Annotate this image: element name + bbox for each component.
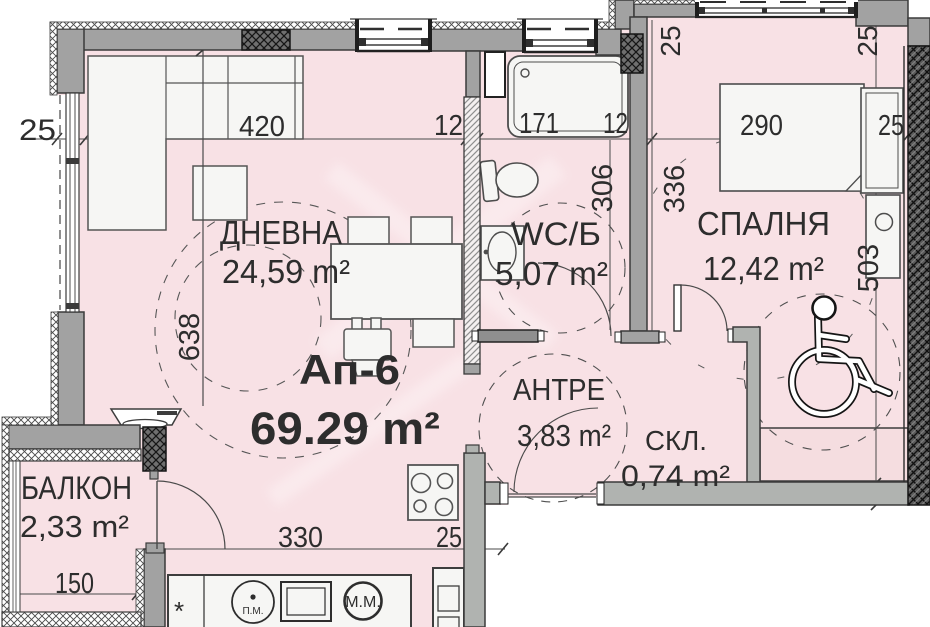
- svg-text:330: 330: [278, 522, 323, 554]
- svg-text:150: 150: [55, 568, 94, 600]
- svg-text:420: 420: [239, 111, 285, 143]
- svg-text:503: 503: [853, 244, 885, 292]
- svg-text:12: 12: [603, 108, 628, 140]
- svg-text:ДНЕВНА: ДНЕВНА: [220, 214, 342, 251]
- svg-text:69.29 m²: 69.29 m²: [250, 403, 440, 454]
- svg-text:25: 25: [852, 25, 883, 56]
- svg-text:СКЛ.: СКЛ.: [645, 425, 707, 456]
- svg-text:25: 25: [436, 522, 462, 554]
- svg-text:12,42 m²: 12,42 m²: [703, 250, 824, 287]
- svg-text:25: 25: [19, 114, 56, 147]
- svg-text:3,83 m²: 3,83 m²: [517, 418, 611, 453]
- svg-text:П.М.: П.М.: [242, 606, 263, 617]
- svg-text:0,74 m²: 0,74 m²: [621, 460, 730, 493]
- svg-text:2,33 m²: 2,33 m²: [20, 509, 129, 544]
- svg-text:М.М.: М.М.: [345, 594, 381, 611]
- svg-text:24,59 m²: 24,59 m²: [222, 253, 350, 290]
- svg-text:336: 336: [659, 165, 691, 213]
- svg-text:306: 306: [587, 164, 619, 212]
- svg-text:WC/Б: WC/Б: [511, 216, 601, 252]
- svg-text:*: *: [174, 596, 184, 626]
- svg-text:638: 638: [174, 313, 206, 361]
- svg-text:БАЛКОН: БАЛКОН: [21, 470, 132, 506]
- svg-text:Ап-6: Ап-6: [299, 346, 400, 393]
- svg-text:12: 12: [434, 110, 463, 142]
- svg-text:25: 25: [655, 25, 686, 56]
- svg-text:5,07 m²: 5,07 m²: [495, 255, 608, 292]
- svg-text:АНТРЕ: АНТРЕ: [513, 372, 605, 407]
- svg-text:25: 25: [878, 110, 904, 142]
- svg-text:290: 290: [740, 110, 783, 142]
- svg-text:СПАЛНЯ: СПАЛНЯ: [697, 205, 830, 242]
- svg-text:171: 171: [519, 108, 559, 140]
